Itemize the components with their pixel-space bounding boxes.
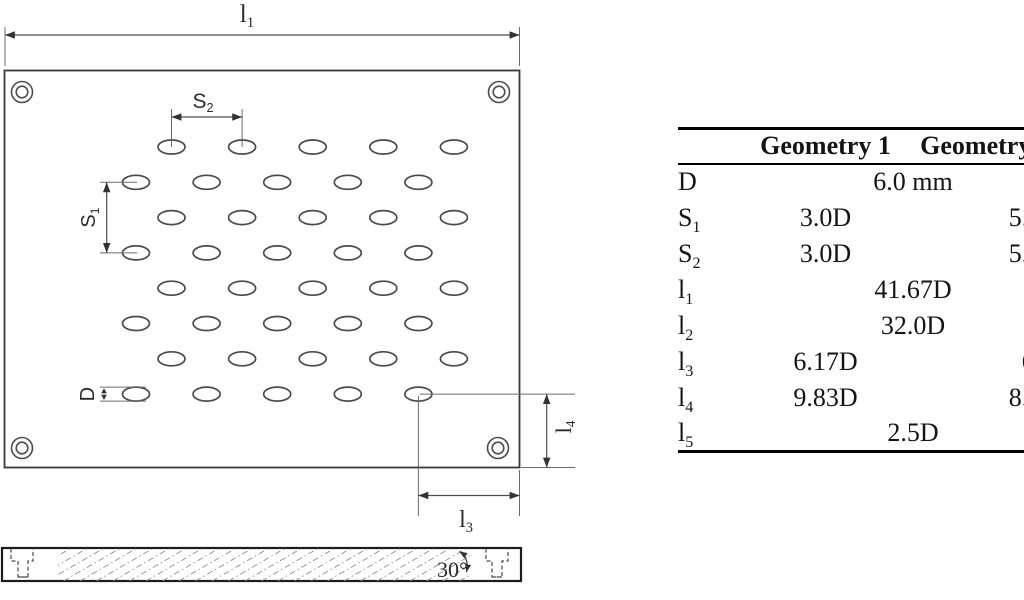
dimension-l3-label: l3	[459, 507, 473, 536]
hole-ellipse	[264, 387, 291, 401]
hole-ellipse	[334, 387, 361, 401]
hole-ellipse	[264, 246, 291, 260]
side-section-view: 30°	[2, 548, 521, 582]
param-cell: S1	[678, 200, 753, 236]
hole-ellipse	[370, 352, 397, 366]
shared-value-cell: 2.5D	[753, 416, 1024, 452]
table-row: l5 2.5D	[678, 416, 1024, 452]
param-cell: l5	[678, 416, 753, 452]
hole-ellipse	[123, 387, 150, 401]
param-cell: D	[678, 164, 753, 200]
hole-ellipse	[264, 175, 291, 189]
table-row: l3 6.17D 6.0D	[678, 344, 1024, 380]
hole-ellipse	[193, 317, 220, 331]
angle-annotation: 30°	[437, 552, 468, 583]
hole-ellipse	[299, 281, 326, 295]
dimension-s2: S2	[172, 90, 243, 147]
geometry1-cell: 9.83D	[753, 380, 898, 416]
dimension-l1-label: l1	[240, 1, 254, 31]
hole-ellipse	[405, 246, 432, 260]
table-row: l4 9.83D 8.17D	[678, 380, 1024, 416]
hole-ellipse	[370, 211, 397, 225]
header-geometry1: Geometry 1	[753, 129, 898, 164]
technical-drawing: l1 S2 S1 D l4	[0, 0, 620, 600]
figure-canvas: l1 S2 S1 D l4	[0, 0, 1024, 600]
hole-ellipse	[264, 317, 291, 331]
dimension-s1-label: S1	[78, 207, 102, 227]
hole-ellipse	[229, 352, 256, 366]
table-row: l2 32.0D	[678, 308, 1024, 344]
dimension-l4: l4	[420, 394, 578, 467]
dimension-l1: l1	[5, 1, 520, 66]
hole-ellipse	[193, 387, 220, 401]
shared-value-cell: 41.67D	[753, 272, 1024, 308]
geometry2-cell: 8.17D	[898, 380, 1024, 416]
hole-ellipse	[440, 281, 467, 295]
geometry1-cell: 3.0D	[753, 200, 898, 236]
table-header-row: Geometry 1 Geometry 2	[678, 129, 1024, 164]
shared-value-cell: 32.0D	[753, 308, 1024, 344]
hole-ellipse	[334, 175, 361, 189]
hole-ellipse	[440, 211, 467, 225]
geometry2-cell: 5.75D	[898, 236, 1024, 272]
geometry1-cell: 6.17D	[753, 344, 898, 380]
geometry-table: Geometry 1 Geometry 2 D 6.0 mm S1 3.0D 5…	[678, 127, 1024, 453]
plate-top-view	[5, 71, 520, 468]
hole-ellipse	[193, 246, 220, 260]
hole-ellipse	[440, 140, 467, 154]
hole-ellipse	[370, 281, 397, 295]
geometry2-cell: 5.75D	[898, 200, 1024, 236]
table-row: S2 3.0D 5.75D	[678, 236, 1024, 272]
hole-ellipse	[193, 175, 220, 189]
param-cell: l2	[678, 308, 753, 344]
table-row: S1 3.0D 5.75D	[678, 200, 1024, 236]
hole-ellipse	[370, 140, 397, 154]
header-geometry2: Geometry 2	[898, 129, 1024, 164]
param-cell: l4	[678, 380, 753, 416]
hole-ellipse	[299, 140, 326, 154]
hole-ellipse	[299, 352, 326, 366]
hole-ellipse	[229, 281, 256, 295]
angle-label: 30°	[437, 557, 468, 582]
hole-ellipse	[229, 211, 256, 225]
geometry1-cell: 3.0D	[753, 236, 898, 272]
dimension-l3: l3	[418, 396, 519, 536]
dimension-d: D	[77, 387, 146, 401]
hole-ellipse	[123, 317, 150, 331]
hole-ellipse	[405, 175, 432, 189]
hole-ellipse	[158, 211, 185, 225]
header-param-cell	[678, 129, 753, 164]
hole-grid	[123, 140, 468, 401]
dimension-d-label: D	[77, 387, 99, 401]
counterbore-left	[11, 549, 33, 578]
table-row: l1 41.67D	[678, 272, 1024, 308]
table-row: D 6.0 mm	[678, 164, 1024, 200]
dimension-s1: S1	[78, 182, 137, 253]
dimension-s2-label: S2	[192, 90, 213, 115]
param-cell: l3	[678, 344, 753, 380]
param-cell: S2	[678, 236, 753, 272]
hole-ellipse	[158, 352, 185, 366]
hole-ellipse	[299, 211, 326, 225]
hole-ellipse	[405, 317, 432, 331]
geometry2-cell: 6.0D	[898, 344, 1024, 380]
hole-ellipse	[440, 352, 467, 366]
shared-value-cell: 6.0 mm	[753, 164, 1024, 200]
dimension-l4-label: l4	[551, 420, 578, 433]
counterbore-right	[486, 549, 508, 578]
hole-ellipse	[334, 317, 361, 331]
hole-ellipse	[158, 281, 185, 295]
hole-ellipse	[334, 246, 361, 260]
param-cell: l1	[678, 272, 753, 308]
